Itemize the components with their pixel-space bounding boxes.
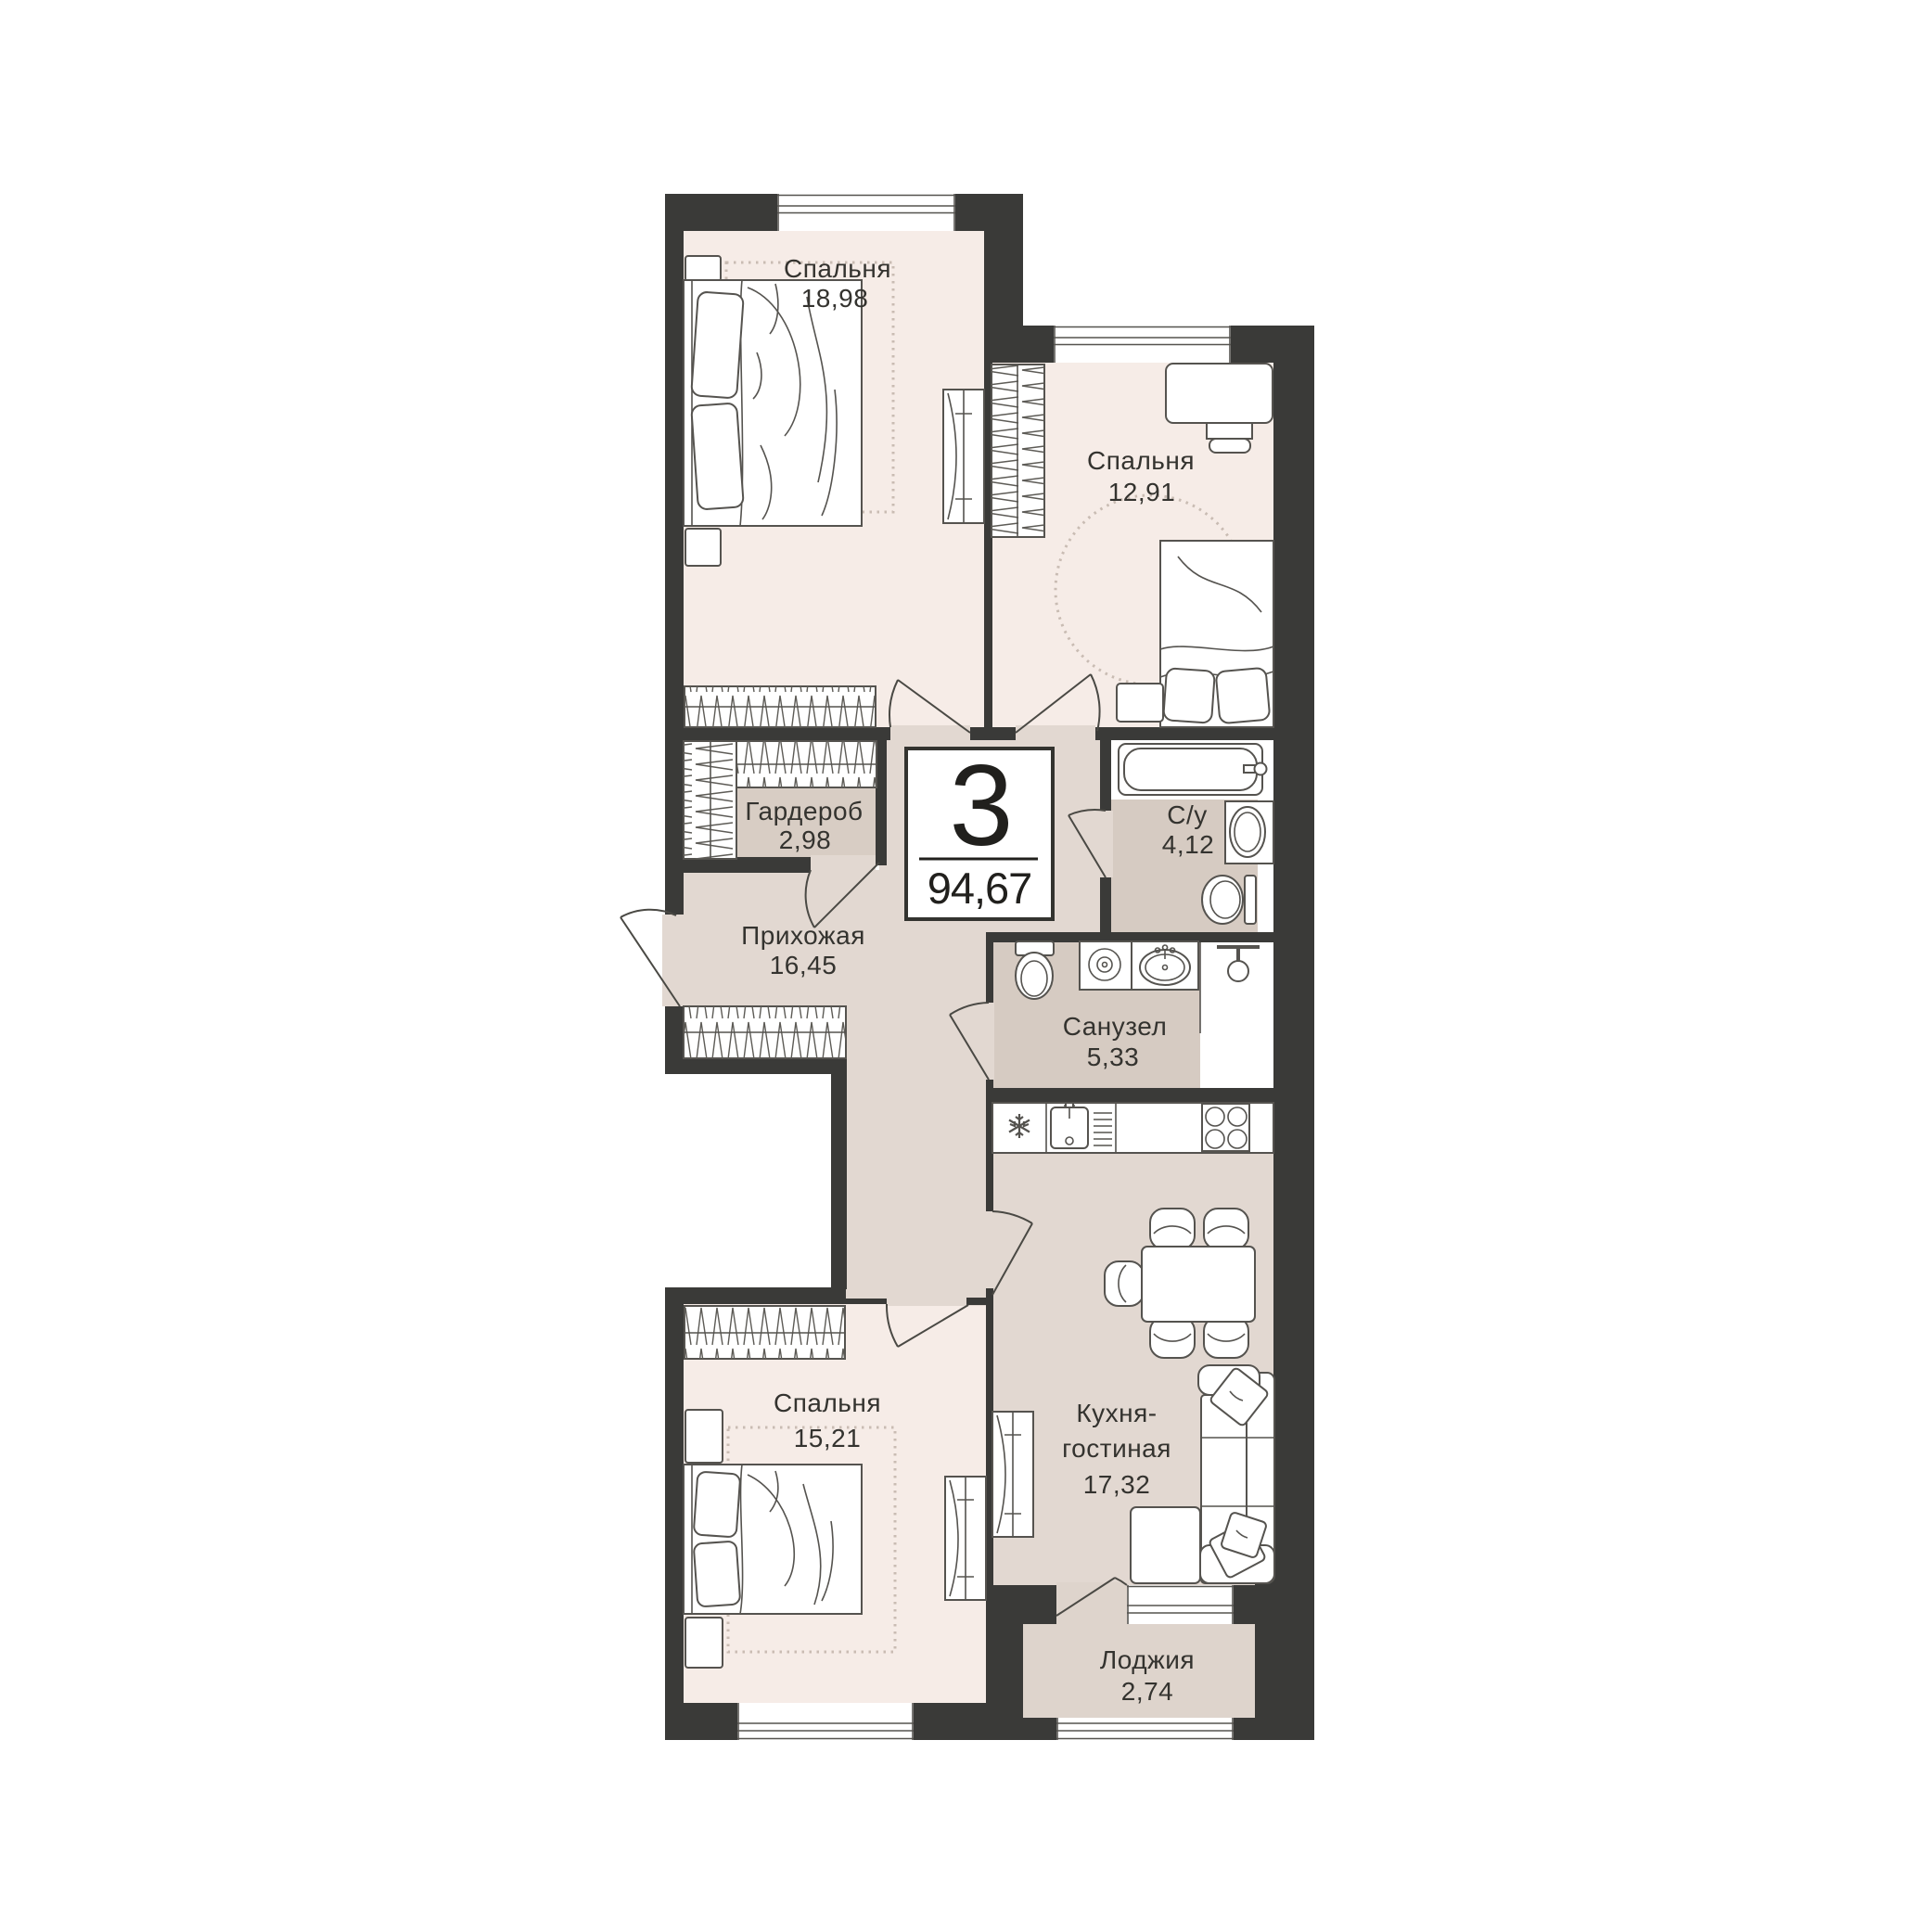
svg-text:2,98: 2,98 — [779, 825, 832, 854]
svg-text:гостиная: гостиная — [1062, 1434, 1171, 1463]
svg-text:Спальня: Спальня — [774, 1388, 881, 1417]
svg-text:Гардероб: Гардероб — [745, 797, 863, 825]
svg-text:94,67: 94,67 — [928, 864, 1032, 913]
svg-text:С/у: С/у — [1167, 800, 1208, 829]
svg-text:3: 3 — [950, 742, 1014, 870]
svg-text:Лоджия: Лоджия — [1100, 1645, 1195, 1674]
svg-text:12,91: 12,91 — [1108, 478, 1176, 506]
svg-text:Спальня: Спальня — [784, 254, 891, 283]
svg-text:18,98: 18,98 — [801, 284, 869, 313]
svg-text:15,21: 15,21 — [794, 1424, 862, 1452]
svg-text:Кухня-: Кухня- — [1076, 1399, 1157, 1427]
svg-text:5,33: 5,33 — [1087, 1043, 1140, 1071]
svg-text:4,12: 4,12 — [1162, 830, 1215, 859]
svg-text:16,45: 16,45 — [770, 951, 838, 979]
svg-text:17,32: 17,32 — [1083, 1470, 1151, 1499]
svg-text:Санузел: Санузел — [1063, 1012, 1168, 1041]
svg-text:2,74: 2,74 — [1121, 1677, 1174, 1706]
svg-text:Спальня: Спальня — [1087, 446, 1195, 475]
svg-text:Прихожая: Прихожая — [741, 921, 865, 950]
